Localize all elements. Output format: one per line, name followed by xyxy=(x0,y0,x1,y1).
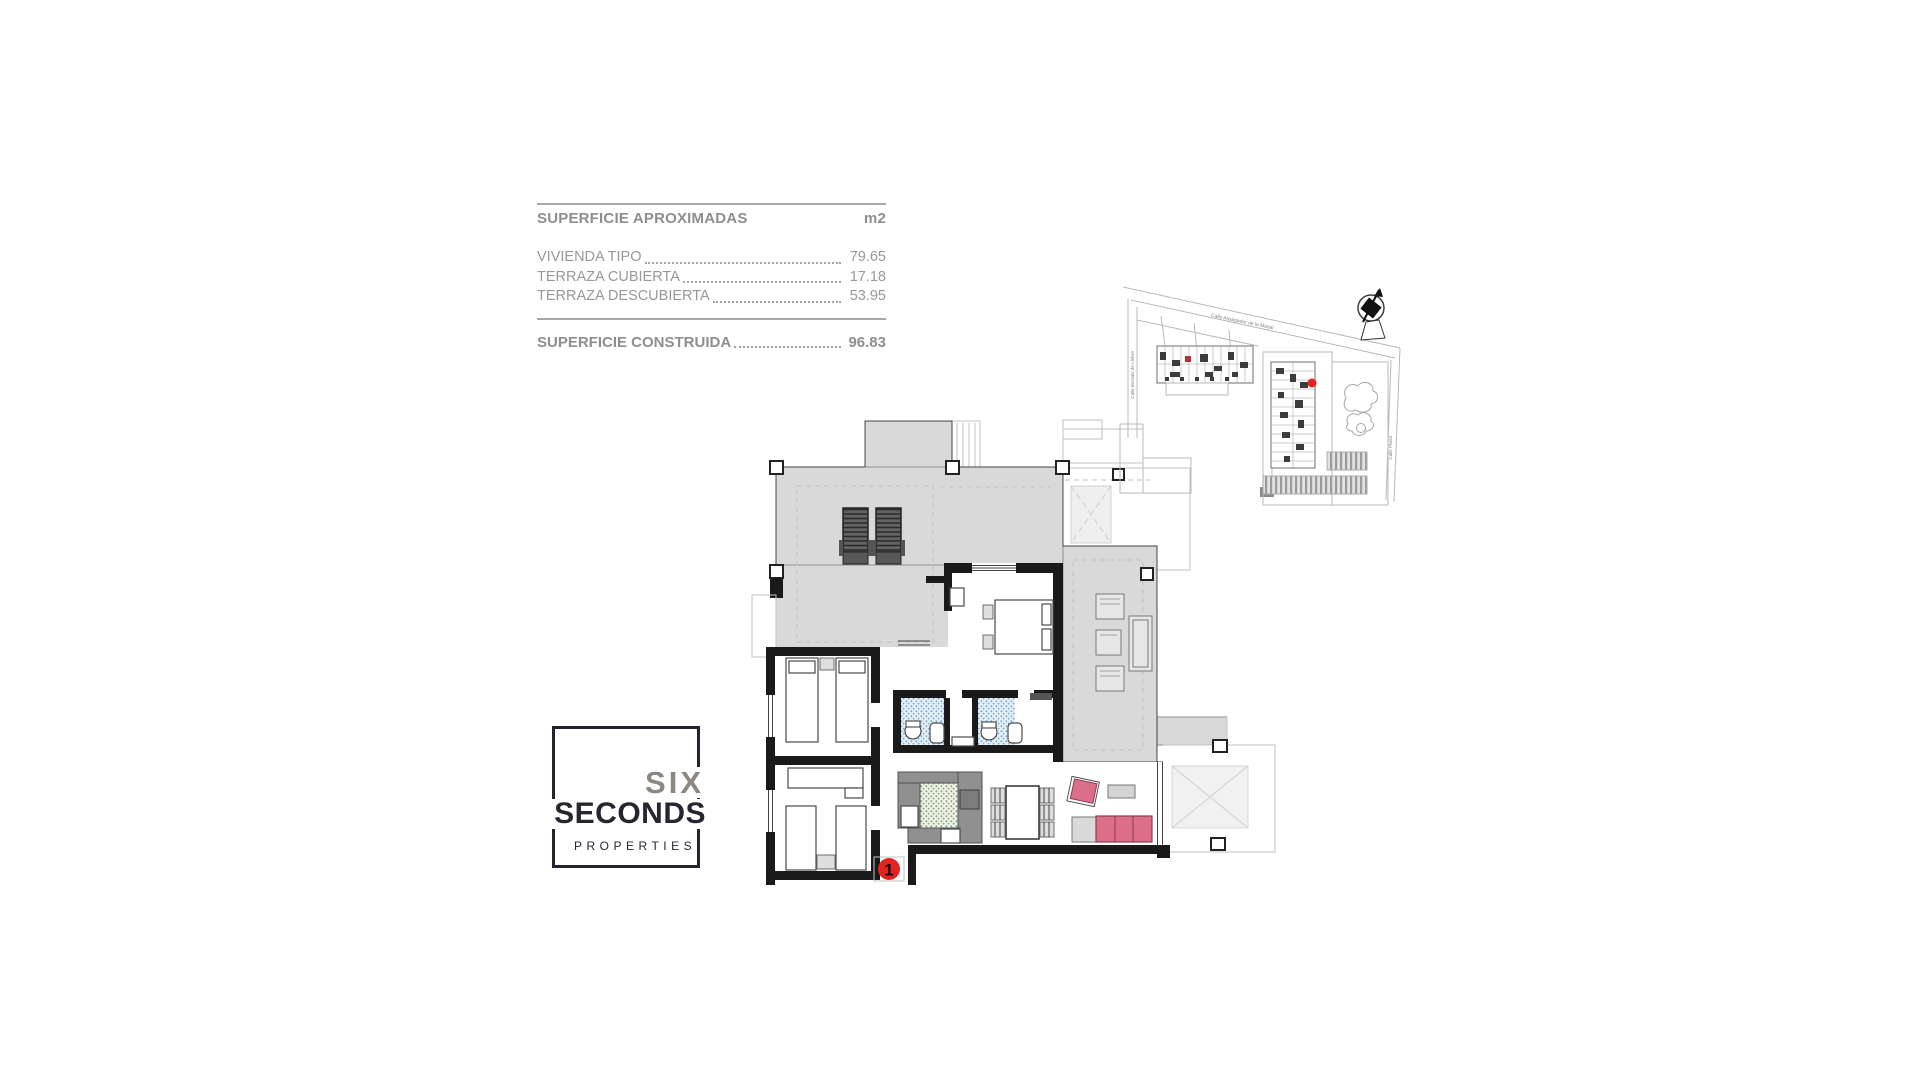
sun-lounger xyxy=(839,508,872,564)
armchair xyxy=(1067,776,1100,806)
table-total-row: SUPERFICIE CONSTRUIDA 96.83 xyxy=(537,333,886,353)
terrace-top xyxy=(776,467,1063,565)
row-value: 79.65 xyxy=(844,248,886,268)
logo-word-six: SIX xyxy=(639,767,705,798)
outdoor-chair xyxy=(1096,666,1124,691)
outdoor-table xyxy=(1129,616,1152,671)
bed xyxy=(786,806,816,870)
dining-area xyxy=(991,786,1054,839)
outdoor-chair xyxy=(1096,594,1124,619)
closet xyxy=(950,588,964,606)
table-title: SUPERFICIE APROXIMADAS xyxy=(537,210,748,227)
parapet-post xyxy=(1056,461,1069,474)
logo-word-properties: PROPERTIES xyxy=(574,840,696,852)
sun-lounger xyxy=(872,508,905,564)
compass-icon xyxy=(1358,288,1385,340)
sofa xyxy=(1096,816,1152,842)
logo-word-seconds: SECONDS xyxy=(550,799,707,829)
appliance xyxy=(941,829,960,843)
dot-leader xyxy=(734,346,841,348)
row-value: 53.95 xyxy=(844,287,886,307)
table-rule-bottom xyxy=(537,318,886,320)
street-label-top: Calle Assagador de la Marjal xyxy=(1210,313,1274,332)
dot-leader xyxy=(713,301,841,303)
total-value: 96.83 xyxy=(844,333,886,353)
kitchen xyxy=(898,772,982,843)
outdoor-chair xyxy=(1096,630,1121,655)
table-row: TERRAZA CUBIERTA 17.18 xyxy=(537,268,886,288)
terrace-left xyxy=(776,565,950,650)
row-label: TERRAZA DESCUBIERTA xyxy=(537,287,710,307)
coffee-table xyxy=(1108,785,1135,798)
row-value: 17.18 xyxy=(844,268,886,288)
desk xyxy=(788,768,863,788)
sink xyxy=(1008,723,1022,743)
dot-leader xyxy=(683,281,841,283)
parapet-post xyxy=(770,461,783,474)
wardrobe xyxy=(1030,693,1052,700)
unit-number: 1 xyxy=(884,861,893,880)
row-label: VIVIENDA TIPO xyxy=(537,248,642,268)
row-label: TERRAZA CUBIERTA xyxy=(537,268,680,288)
location-dot-secondary xyxy=(1185,356,1191,362)
floor-plan-page: 1 xyxy=(0,0,1920,1080)
appliance xyxy=(901,806,918,827)
street-label-right: Calle Plana xyxy=(1388,436,1393,460)
parapet-post xyxy=(770,565,783,578)
apartment-floor-plan: 1 xyxy=(752,415,1275,885)
nightstand xyxy=(983,605,993,619)
site-plan: Calle Assagador de la Marjal Calle Borda… xyxy=(1120,287,1400,505)
bed xyxy=(836,806,866,870)
nightstand xyxy=(817,855,835,869)
table-row: VIVIENDA TIPO 79.65 xyxy=(537,248,886,268)
dining-table xyxy=(1006,786,1039,839)
surface-table: SUPERFICIE APROXIMADAS m2 VIVIENDA TIPO … xyxy=(537,203,886,352)
nightstand xyxy=(820,658,834,670)
site-building-1 xyxy=(1157,346,1253,395)
parapet-post xyxy=(1141,568,1153,580)
bathroom-1 xyxy=(901,698,944,745)
parapet-post xyxy=(946,461,959,474)
table-row: TERRAZA DESCUBIERTA 53.95 xyxy=(537,287,886,307)
street-label-left: Calle Bordals de Llebre xyxy=(1130,351,1135,399)
dot-leader xyxy=(645,262,842,264)
terrace-bump xyxy=(865,421,952,468)
total-label: SUPERFICIE CONSTRUIDA xyxy=(537,333,731,353)
plan-drawing: 1 xyxy=(0,0,1920,1080)
nightstand xyxy=(983,635,993,649)
side-table xyxy=(1072,817,1097,842)
vanity xyxy=(952,737,974,746)
unit-number-marker: 1 xyxy=(878,858,900,880)
location-marker-dot xyxy=(1308,379,1317,388)
parapet-post xyxy=(1113,469,1124,480)
sink xyxy=(930,723,944,743)
unit-header: m2 xyxy=(864,210,886,227)
six-seconds-logo: SIX SECONDS PROPERTIES xyxy=(552,726,700,868)
